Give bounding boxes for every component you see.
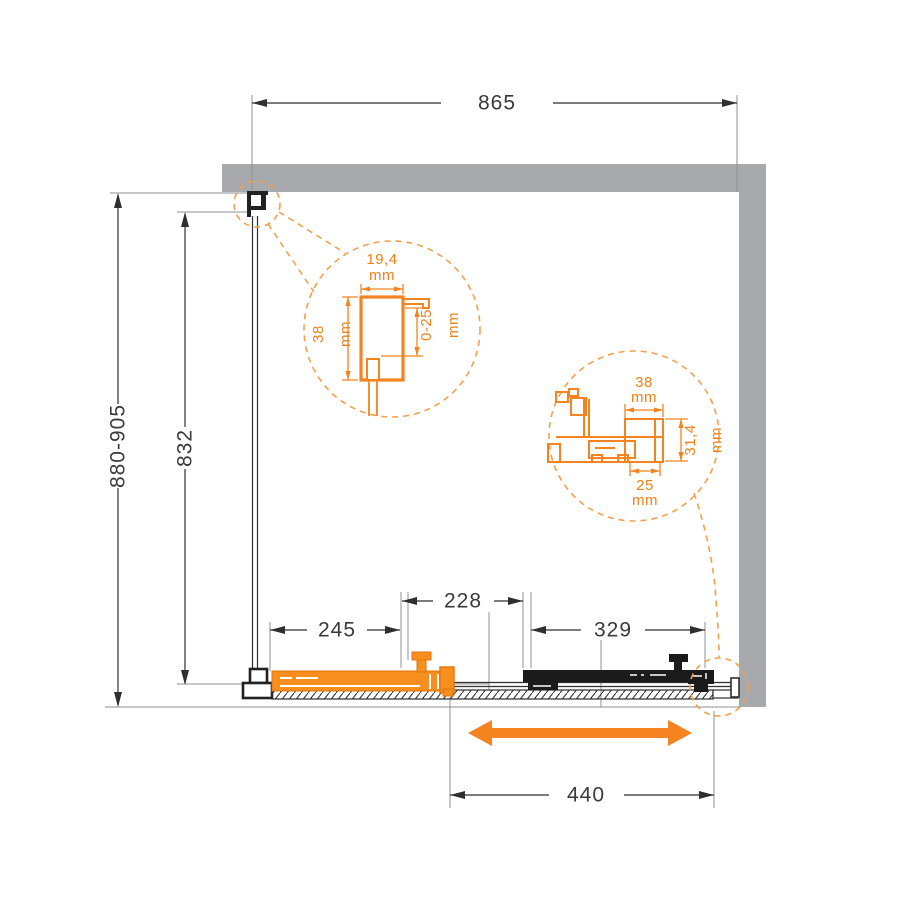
black-door-knob-stem <box>674 662 682 671</box>
wall-profile-glass-lines <box>369 380 377 416</box>
black-door-right-roller <box>694 684 708 692</box>
dim-label-overlap-segment: 228 <box>444 590 482 613</box>
detail1-height-value: 38 <box>310 325 327 343</box>
wall-bracket-bottom <box>243 669 272 698</box>
callout-leader-bottom <box>694 493 719 657</box>
rail-wall-end-cap <box>731 678 739 697</box>
detail2-top-width-unit: mm <box>631 389 657 406</box>
dim-overall-height: 880-905 <box>107 193 130 707</box>
dim-overlap-segment: 228 <box>402 590 523 613</box>
dim-label-overall-height: 880-905 <box>107 404 130 488</box>
side-glass-panel <box>253 216 258 670</box>
wall-bracket-top <box>247 191 268 217</box>
bottom-bracket-lower <box>243 683 272 698</box>
detail-callouts <box>234 181 748 716</box>
dim-overall-width: 865 <box>252 92 737 115</box>
black-door-slab <box>523 670 691 682</box>
dim-door-segment: 329 <box>531 619 705 642</box>
black-door-knob-cap <box>669 654 688 662</box>
wall-top <box>222 164 766 192</box>
wall-profile-hook <box>403 299 429 308</box>
dim-fixed-segment: 245 <box>270 619 400 642</box>
wall-profile-glass-slot <box>367 359 379 380</box>
dim-label-glass-height: 832 <box>174 429 197 467</box>
orange-door-knob-cap <box>412 652 431 660</box>
travel-double-arrow <box>468 720 692 746</box>
detail2-inner-width-unit: mm <box>632 492 658 509</box>
detail2-height-unit: mm <box>708 427 725 453</box>
detail1-width-unit: mm <box>369 267 395 284</box>
dim-door-travel: 440 <box>450 784 714 807</box>
detail1-width-value: 19,4 <box>366 251 397 268</box>
technical-drawing-page: 865 880-905 832 245 228 329 440 <box>0 0 900 900</box>
bracket-left-bar <box>247 191 251 217</box>
glass-panel-lines <box>253 216 258 670</box>
detail1-adjust-unit: mm <box>445 312 462 338</box>
extension-lines <box>105 95 740 808</box>
drawing-canvas: 865 880-905 832 245 228 329 440 <box>0 0 900 900</box>
detail2-height-value: 31,4 <box>682 424 699 455</box>
wall-right <box>739 164 766 707</box>
orange-door-slab <box>272 671 450 691</box>
detail1-adjust-value: 0-25 <box>418 309 435 341</box>
dim-label-fixed-segment: 245 <box>318 619 356 642</box>
orange-door-roller <box>443 689 453 696</box>
dim-glass-height: 832 <box>174 212 197 685</box>
door-panel-orange <box>272 652 454 696</box>
callout-connector-lines <box>268 212 345 292</box>
detail1-height-unit: mm <box>337 321 354 347</box>
dim-label-door-travel: 440 <box>567 784 605 807</box>
orange-door-knob-stem <box>417 660 426 672</box>
detail-rail-profile: 38 mm 31,4 mm 25 mm <box>548 374 725 509</box>
dim-label-overall-width: 865 <box>478 92 516 115</box>
detail-wall-profile: 19,4 mm 38 mm 0-25 mm <box>310 251 462 416</box>
bottom-bracket-upper <box>250 669 267 683</box>
dim-label-door-segment: 329 <box>594 619 632 642</box>
